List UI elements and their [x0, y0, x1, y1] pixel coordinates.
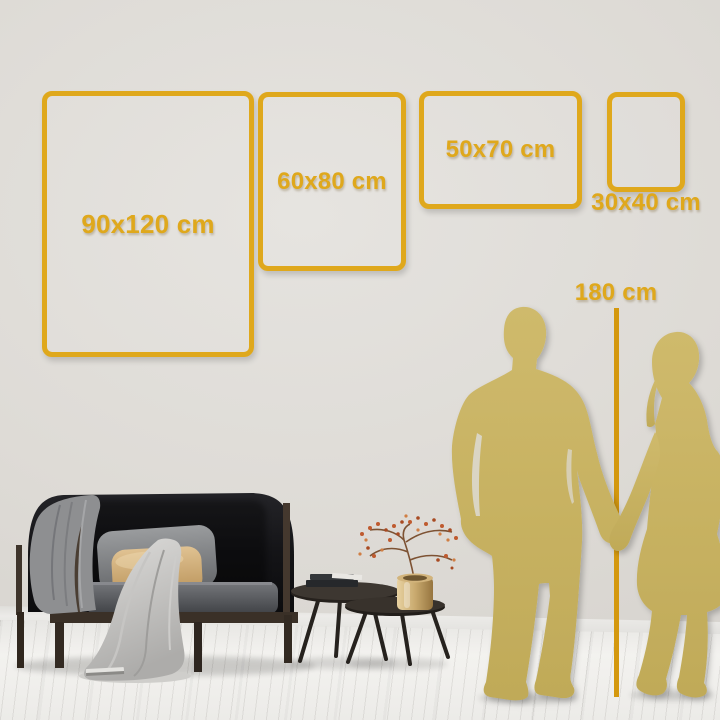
- sofa-wood-post: [283, 503, 290, 615]
- dried-plant: [358, 514, 458, 578]
- room-scene: [0, 0, 720, 720]
- woman-silhouette: [636, 332, 720, 698]
- brass-vase: [397, 574, 433, 611]
- coffee-tables: [288, 514, 458, 670]
- size-guide-scene: 90x120 cm 60x80 cm 50x70 cm 30x40 cm 180…: [0, 0, 720, 720]
- seat-cushion: [86, 582, 278, 614]
- sofa: [15, 493, 315, 683]
- sofa-wood-post: [16, 545, 22, 615]
- books-stack: [306, 573, 362, 587]
